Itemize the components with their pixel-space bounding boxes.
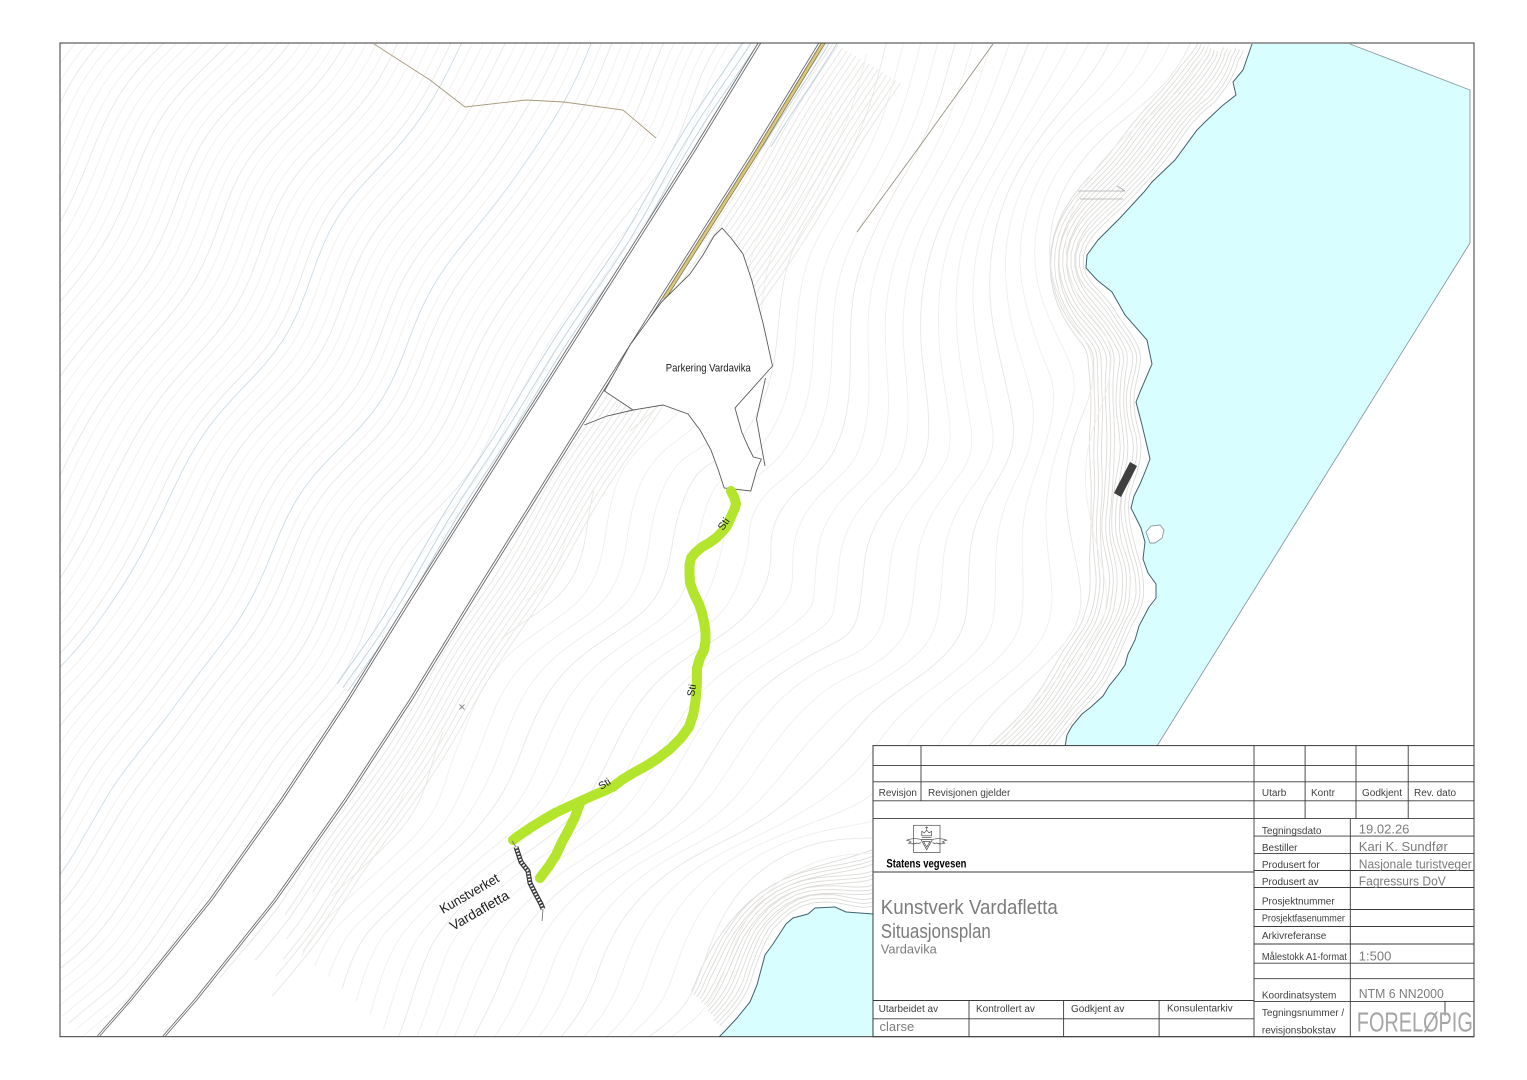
svg-text:Fagressurs DoV: Fagressurs DoV (1359, 874, 1446, 889)
svg-text:clarse: clarse (880, 1019, 915, 1034)
svg-text:Vardavika: Vardavika (881, 942, 938, 957)
svg-text:FORELØPIG: FORELØPIG (1357, 1007, 1473, 1038)
svg-text:Utarb: Utarb (1262, 788, 1287, 799)
svg-text:NTM 6 NN2000: NTM 6 NN2000 (1359, 986, 1444, 1001)
svg-text:Godkjent: Godkjent (1362, 788, 1402, 799)
svg-text:Sti: Sti (685, 683, 699, 697)
svg-text:Situasjonsplan: Situasjonsplan (881, 921, 991, 943)
svg-text:Tegningsdato: Tegningsdato (1262, 826, 1322, 837)
svg-text:Revisjonen gjelder: Revisjonen gjelder (928, 788, 1011, 799)
svg-text:Revisjon: Revisjon (879, 788, 917, 799)
svg-text:Kontr: Kontr (1311, 788, 1336, 799)
svg-text:Bestiller: Bestiller (1262, 843, 1298, 854)
svg-text:Statens vegvesen: Statens vegvesen (886, 857, 966, 871)
svg-text:Produsert av: Produsert av (1262, 877, 1319, 888)
svg-text:1:500: 1:500 (1359, 949, 1392, 964)
svg-text:Utarbeidet av: Utarbeidet av (879, 1004, 938, 1015)
svg-text:Kari K. Sundfør: Kari K. Sundfør (1359, 839, 1449, 854)
svg-text:Koordinatsystem: Koordinatsystem (1262, 991, 1336, 1002)
svg-text:19.02.26: 19.02.26 (1359, 822, 1410, 837)
svg-text:Nasjonale turistveger: Nasjonale turistveger (1359, 857, 1473, 872)
svg-text:Tegningsnummer /: Tegningsnummer / (1262, 1008, 1344, 1019)
svg-text:Produsert for: Produsert for (1262, 860, 1320, 871)
svg-text:Målestokk A1-format: Målestokk A1-format (1262, 951, 1347, 963)
svg-text:Prosjektfasenummer: Prosjektfasenummer (1262, 914, 1346, 925)
svg-text:Arkivreferanse: Arkivreferanse (1262, 931, 1327, 942)
svg-text:Kontrollert av: Kontrollert av (976, 1004, 1035, 1015)
svg-text:Konsulentarkiv: Konsulentarkiv (1167, 1004, 1233, 1015)
svg-text:Parkering Vardavika: Parkering Vardavika (666, 363, 752, 375)
svg-text:Kunstverk Vardafletta: Kunstverk Vardafletta (881, 897, 1059, 919)
svg-text:Godkjent av: Godkjent av (1071, 1004, 1124, 1015)
svg-text:Rev. dato: Rev. dato (1414, 788, 1456, 799)
svg-text:Prosjektnummer: Prosjektnummer (1262, 897, 1335, 908)
svg-text:revisjonsbokstav: revisjonsbokstav (1262, 1026, 1336, 1037)
